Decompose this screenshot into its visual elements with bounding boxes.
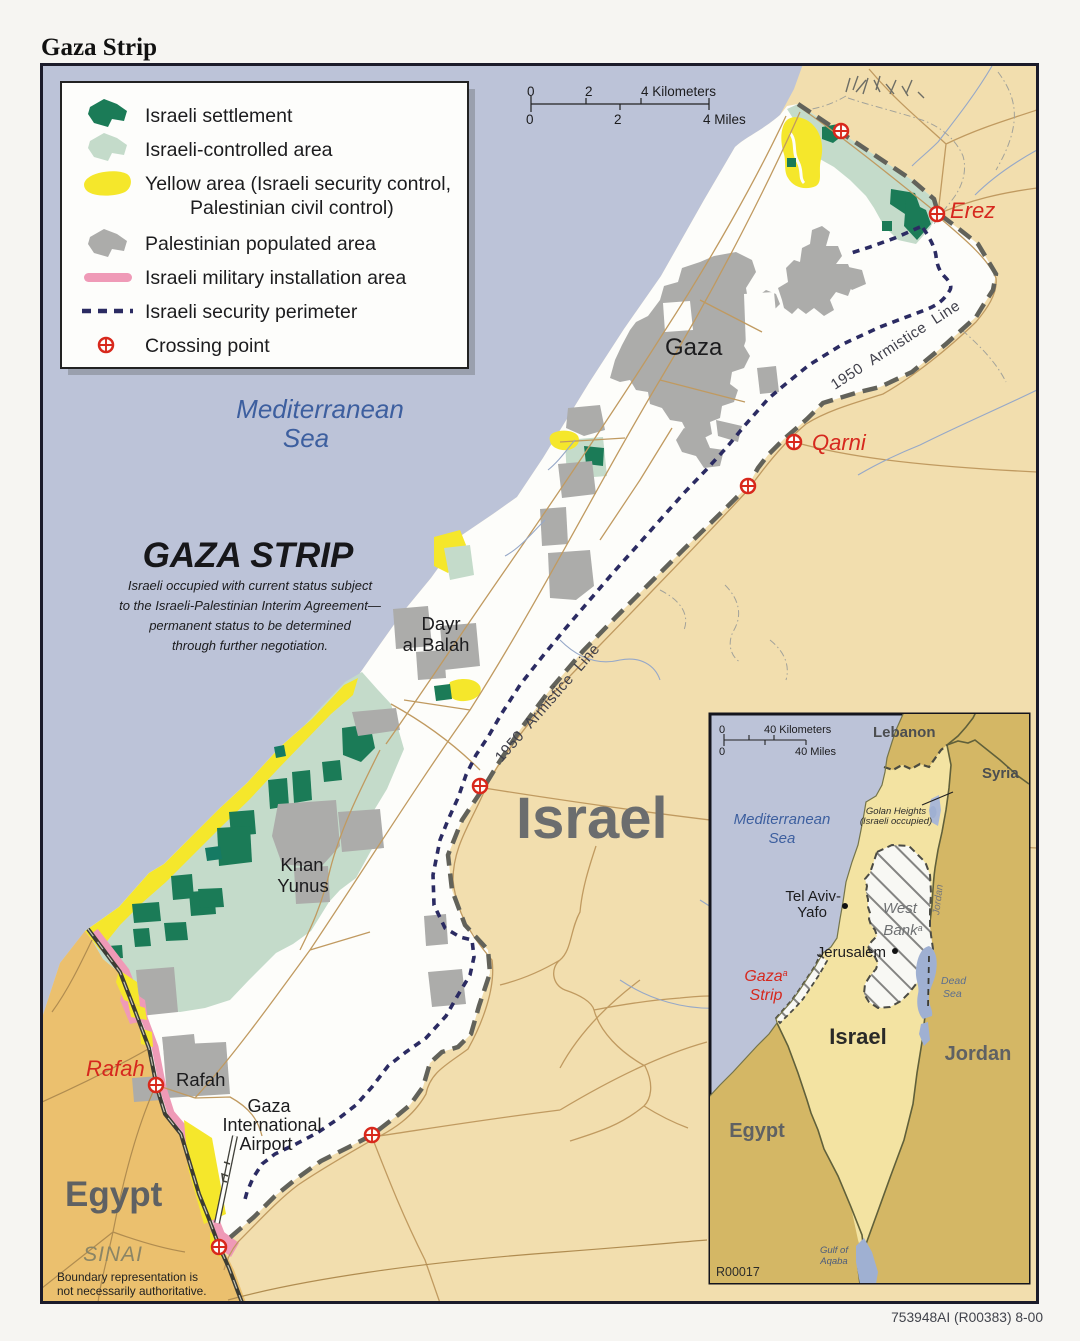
svg-text:Rafah: Rafah — [176, 1069, 225, 1090]
svg-text:Israeli settlement: Israeli settlement — [145, 105, 293, 127]
svg-text:0: 0 — [719, 746, 725, 758]
svg-text:Palestinian populated area: Palestinian populated area — [145, 233, 376, 255]
svg-text:R00017: R00017 — [716, 1265, 760, 1279]
svg-text:Gazaa: Gazaa — [744, 968, 787, 985]
svg-text:0: 0 — [526, 112, 534, 127]
svg-text:Gaza Strip: Gaza Strip — [41, 34, 157, 61]
svg-text:Yafo: Yafo — [797, 904, 827, 921]
svg-text:Boundary representation is: Boundary representation is — [57, 1270, 198, 1284]
svg-text:Palestinian civil control): Palestinian civil control) — [190, 197, 394, 219]
svg-text:Erez: Erez — [950, 198, 995, 223]
svg-text:Syria: Syria — [982, 765, 1019, 782]
svg-text:through further negotiation.: through further negotiation. — [172, 638, 328, 653]
svg-text:4 Kilometers: 4 Kilometers — [641, 84, 716, 99]
svg-text:2: 2 — [614, 112, 622, 127]
svg-text:Sea: Sea — [943, 988, 962, 1000]
svg-text:2: 2 — [585, 84, 593, 99]
svg-text:0: 0 — [527, 84, 535, 99]
svg-text:Qarni: Qarni — [812, 430, 867, 455]
svg-text:Lebanon: Lebanon — [873, 724, 936, 741]
svg-text:Dayr: Dayr — [421, 613, 460, 634]
svg-text:Israel: Israel — [829, 1024, 887, 1049]
svg-text:Jerusalem: Jerusalem — [817, 944, 886, 961]
svg-text:753948AI (R00383) 8-00: 753948AI (R00383) 8-00 — [891, 1310, 1043, 1325]
svg-text:40 Miles: 40 Miles — [795, 746, 836, 758]
svg-text:Gulf of: Gulf of — [820, 1245, 849, 1256]
svg-text:Sea: Sea — [769, 830, 796, 847]
svg-text:Gaza: Gaza — [247, 1096, 291, 1116]
svg-text:40 Kilometers: 40 Kilometers — [764, 724, 832, 736]
svg-text:Strip: Strip — [750, 987, 783, 1004]
svg-text:Banka: Banka — [883, 922, 922, 939]
svg-text:to the Israeli-Palestinian Int: to the Israeli-Palestinian Interim Agree… — [119, 598, 382, 613]
svg-text:West: West — [883, 900, 918, 917]
svg-text:Israeli occupied with current: Israeli occupied with current status sub… — [128, 578, 374, 593]
svg-text:Khan: Khan — [280, 854, 323, 875]
svg-text:0: 0 — [719, 724, 725, 736]
svg-text:Israel: Israel — [516, 786, 668, 851]
svg-text:(Israeli occupied): (Israeli occupied) — [860, 816, 932, 827]
svg-text:Sea: Sea — [283, 423, 329, 453]
svg-text:Egypt: Egypt — [65, 1175, 163, 1214]
svg-text:Israeli military installation: Israeli military installation area — [145, 267, 406, 289]
svg-text:Crossing point: Crossing point — [145, 335, 270, 357]
svg-text:al Balah: al Balah — [403, 634, 470, 655]
svg-text:Egypt: Egypt — [729, 1120, 785, 1142]
svg-text:Aqaba: Aqaba — [819, 1256, 847, 1267]
svg-text:Rafah: Rafah — [86, 1056, 145, 1081]
svg-text:permanent status to be determi: permanent status to be determined — [148, 618, 351, 633]
svg-text:SINAI: SINAI — [83, 1243, 143, 1266]
svg-text:Gaza: Gaza — [665, 334, 723, 361]
svg-text:Israeli security perimeter: Israeli security perimeter — [145, 301, 358, 323]
svg-text:GAZA STRIP: GAZA STRIP — [143, 536, 354, 575]
svg-text:Jordan: Jordan — [945, 1043, 1012, 1065]
svg-text:International: International — [222, 1115, 321, 1135]
svg-text:Yunus: Yunus — [277, 875, 328, 896]
svg-text:Israeli-controlled area: Israeli-controlled area — [145, 139, 333, 161]
svg-text:Yellow area (Israeli security: Yellow area (Israeli security control, — [145, 173, 451, 195]
svg-text:Mediterranean: Mediterranean — [236, 394, 404, 424]
svg-text:Mediterranean: Mediterranean — [734, 811, 831, 828]
svg-text:4 Miles: 4 Miles — [703, 112, 746, 127]
svg-text:not necessarily authoritative.: not necessarily authoritative. — [57, 1284, 207, 1298]
svg-text:Dead: Dead — [941, 975, 967, 987]
svg-text:Tel Aviv-: Tel Aviv- — [785, 888, 841, 905]
svg-text:Airport: Airport — [239, 1134, 292, 1154]
